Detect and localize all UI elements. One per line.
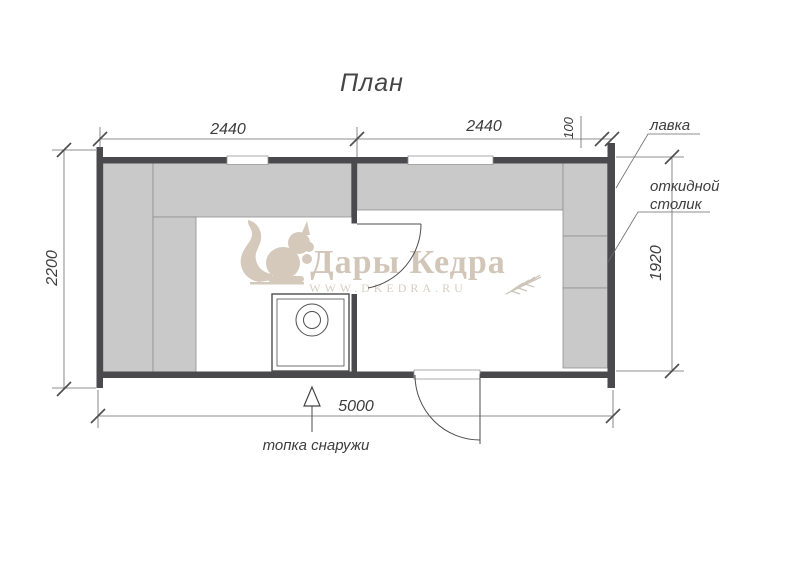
- firebox-arrow-icon: [304, 387, 320, 406]
- label-bench: лавка: [649, 117, 690, 134]
- stove: [272, 294, 349, 371]
- floor-plan-svg: План Дары Кедра WWW.DKEDRA.RU: [0, 0, 800, 565]
- wall-left: [97, 147, 104, 388]
- floor-plan-page: План Дары Кедра WWW.DKEDRA.RU: [0, 0, 800, 565]
- bench-left-lower-step: [153, 217, 196, 372]
- window-left-room: [227, 156, 268, 165]
- partition-wall-lower: [352, 294, 358, 378]
- bench-top-right-room: [357, 163, 563, 210]
- label-firebox: топка снаружи: [263, 437, 370, 454]
- dim-total-width: 5000: [338, 398, 374, 415]
- squirrel-icon: [241, 220, 314, 285]
- bench-right-bottom-segment: [563, 288, 608, 368]
- dim-room-right-height: 1920: [648, 245, 665, 281]
- dim-wall-offset: 100: [561, 116, 576, 138]
- page-title: План: [340, 69, 404, 97]
- watermark-website: WWW.DKEDRA.RU: [309, 281, 467, 295]
- window-right-room: [408, 156, 493, 165]
- dim-room-right-width: 2440: [465, 118, 502, 135]
- wall-right: [608, 143, 616, 388]
- label-folding-table-line2: столик: [650, 196, 703, 213]
- entry-door-swing-arc: [415, 375, 480, 440]
- bench-right-top-segment: [563, 163, 608, 236]
- entry-door-threshold: [414, 370, 480, 379]
- label-folding-table-line1: откидной: [650, 178, 720, 195]
- watermark: Дары Кедра WWW.DKEDRA.RU: [241, 220, 541, 295]
- folding-table-segment: [563, 236, 608, 288]
- dim-total-height: 2200: [44, 250, 61, 287]
- stove-outline: [272, 294, 349, 371]
- bench-top-left-room: [153, 163, 352, 217]
- bench-left-upper-tier: [103, 163, 153, 372]
- wheat-sprig-icon: [506, 275, 541, 294]
- dim-room-left-width: 2440: [209, 121, 246, 138]
- partition-wall-upper: [352, 157, 358, 224]
